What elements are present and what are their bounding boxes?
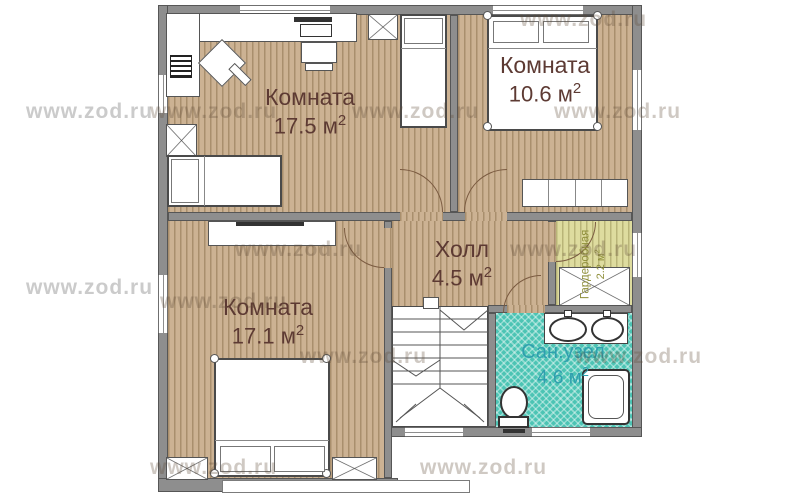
label-wardrobe: Гардеробная 2.2 м2	[552, 220, 636, 308]
bed-post	[483, 122, 492, 131]
bed-post	[210, 354, 219, 363]
window-top-right	[493, 5, 583, 15]
blanket-line	[488, 48, 597, 49]
closet-divider	[548, 180, 549, 206]
window-left-lower	[158, 275, 168, 333]
shelf-icon	[170, 55, 192, 78]
label-room-17-1: Комната 17.1 м2	[188, 294, 348, 349]
window-right-upper	[632, 70, 642, 130]
room-area: 17.1 м2	[188, 322, 348, 350]
bed-post	[210, 469, 219, 478]
closet-divider	[601, 180, 602, 206]
toilet-base	[503, 429, 525, 433]
watermark: www.zod.ru	[26, 276, 153, 300]
toilet-icon	[500, 386, 528, 419]
room-area: 2.2 м2	[593, 229, 609, 299]
pillow	[220, 446, 271, 472]
sink-icon	[549, 317, 587, 342]
sink-icon	[591, 317, 624, 342]
blanket-line	[401, 48, 446, 49]
nightstand-right	[332, 457, 377, 480]
pillow	[171, 159, 199, 203]
pillow	[404, 18, 443, 44]
room-area: 17.5 м2	[230, 112, 390, 140]
wall-between-top-rooms	[450, 15, 458, 212]
window-bottom-bathroom	[532, 427, 590, 437]
door-opening-room-17-5	[400, 212, 443, 221]
keyboard-tray	[305, 63, 333, 71]
room-name: Комната	[230, 84, 390, 112]
label-room-17-5: Комната 17.5 м2	[230, 84, 390, 139]
watermark: www.zod.ru	[420, 456, 547, 480]
room-area: 4.5 м2	[392, 264, 532, 292]
label-room-10-6: Комната 10.6 м2	[465, 52, 625, 107]
staircase	[392, 306, 488, 427]
faucet-icon	[564, 310, 572, 317]
label-hall: Холл 4.5 м2	[392, 236, 532, 291]
room-name: Комната	[465, 52, 625, 80]
bed-post	[322, 354, 331, 363]
cabinet-left	[166, 124, 197, 157]
cabinet-top	[368, 14, 398, 40]
door-opening-room-10-6	[465, 212, 507, 221]
door-opening-room-17-1	[384, 228, 392, 268]
toilet-tank	[498, 416, 529, 428]
faucet-icon	[603, 310, 611, 317]
watermark: www.zod.ru	[26, 100, 153, 124]
tv-icon	[236, 222, 304, 226]
label-bathroom: Сан.узел 4.6 м2	[498, 340, 628, 390]
stair-newel-post	[423, 297, 439, 309]
pillow	[493, 21, 539, 43]
room-name: Комната	[188, 294, 348, 322]
nightstand-left	[166, 457, 208, 480]
bed-post	[593, 122, 602, 131]
printer-body-icon	[300, 24, 332, 37]
computer-desk	[301, 42, 337, 63]
pillow	[543, 21, 589, 43]
window-bottom-stairs	[405, 427, 463, 437]
window-sill-bottom	[222, 480, 470, 493]
blanket-line	[215, 440, 329, 441]
floor-plan: Комната 17.5 м2 Комната 10.6 м2 Комната …	[0, 0, 795, 496]
blanket-line	[204, 156, 205, 206]
room-name: Сан.узел	[498, 340, 628, 364]
room-area: 4.6 м2	[498, 364, 628, 390]
room-area: 10.6 м2	[465, 80, 625, 108]
wall-stair-bathroom	[488, 313, 496, 427]
bed-post	[593, 11, 602, 20]
closet-divider	[575, 180, 576, 206]
bed-post	[483, 11, 492, 20]
room-name: Гардеробная	[579, 229, 593, 299]
printer-icon	[294, 17, 332, 22]
pillow	[274, 446, 325, 472]
room-name: Холл	[392, 236, 532, 264]
